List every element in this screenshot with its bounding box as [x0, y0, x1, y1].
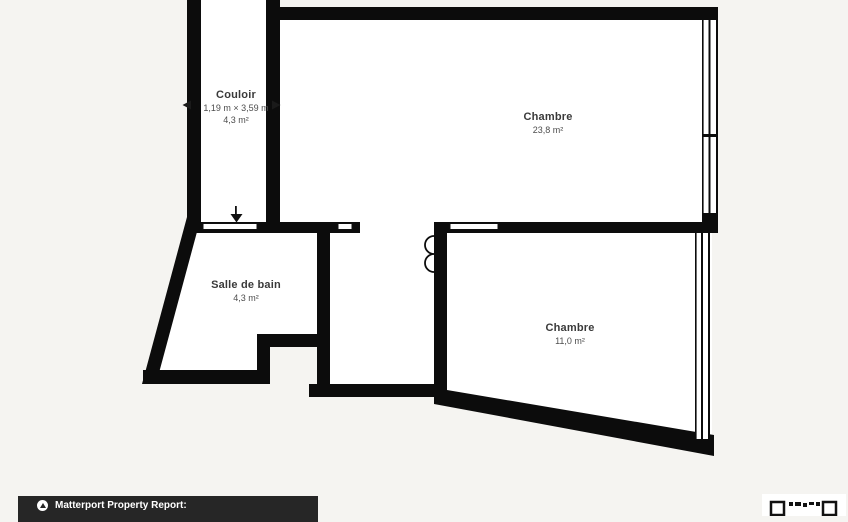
entrance-marker-stem: [235, 206, 237, 215]
room-area-couloir: 4,3 m²: [223, 115, 249, 125]
qr-modules: [789, 502, 820, 507]
floor-plan: Couloir 1,19 m × 3,59 m 4,3 m² Chambre 2…: [0, 0, 848, 507]
window-line: [702, 20, 704, 213]
wall-couloir-right: [266, 0, 280, 232]
window-chambre-1: [702, 20, 718, 213]
wall-couloir-left: [187, 0, 201, 227]
window-line: [716, 20, 718, 213]
footer-label: Matterport Property Report:: [55, 500, 187, 511]
window-line: [701, 233, 703, 439]
window-mullion: [702, 134, 718, 137]
matterport-logo-icon: [37, 500, 48, 511]
qr-finder-right: [823, 502, 836, 515]
room-label-couloir: Couloir: [216, 89, 256, 101]
window-line: [709, 20, 711, 213]
wall-bathroom-right: [317, 230, 330, 388]
matterport-logo-mark: [40, 503, 46, 508]
window-line: [708, 233, 710, 439]
room-label-salle-de-bain: Salle de bain: [211, 279, 281, 291]
qr-code-pattern: [762, 494, 846, 516]
window-chambre-2: [695, 233, 710, 439]
window-line: [695, 233, 697, 439]
room-area-chambre-1: 23,8 m²: [533, 125, 564, 135]
room-area-salle-de-bain: 4,3 m²: [233, 293, 259, 303]
footer-bar: Matterport Property Report:: [18, 496, 318, 522]
room-label-chambre-1: Chambre: [523, 111, 572, 123]
floor-plan-page: Couloir 1,19 m × 3,59 m 4,3 m² Chambre 2…: [0, 0, 848, 507]
wall-chambre-2-left: [434, 222, 447, 402]
room-label-chambre-2: Chambre: [545, 322, 594, 334]
wall-top: [280, 7, 718, 20]
door-small-opening: [338, 224, 352, 230]
wall-vestibule-bottom: [309, 384, 447, 397]
wall-bathroom-bottom: [143, 370, 270, 384]
room-floor-chambre-1: [278, 12, 712, 226]
door-chambre-2: [450, 224, 498, 230]
room-dimensions-couloir: 1,19 m × 3,59 m: [203, 103, 268, 113]
doors: [203, 224, 498, 230]
room-area-chambre-2: 11,0 m²: [555, 336, 585, 346]
door-couloir-entrance: [203, 224, 257, 230]
room-floor-vestibule: [325, 220, 440, 392]
qr-code: [762, 494, 846, 516]
qr-finder-left: [771, 502, 784, 515]
